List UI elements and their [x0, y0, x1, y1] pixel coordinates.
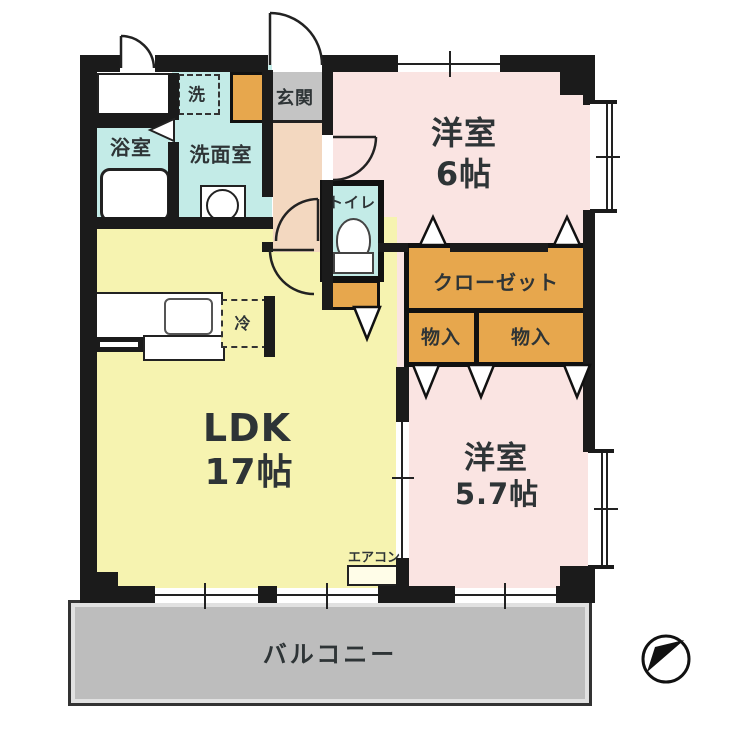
label-closet: クローゼット [433, 267, 559, 296]
wall [264, 296, 275, 357]
wall [560, 55, 595, 95]
label-balcony: バルコニー [263, 635, 398, 670]
kitchen-hatch-slit [100, 342, 138, 347]
wall [262, 242, 273, 252]
label-entrance: 玄関 [276, 84, 314, 110]
label-fridge: 冷 [234, 310, 251, 334]
wall [588, 565, 614, 569]
floor-plan: 浴室 洗 洗面室 玄関 トイレ 洋室 6帖 クローゼット 物入 物入 洋室 5.… [0, 0, 740, 740]
label-storage-right: 物入 [511, 323, 551, 350]
label-storage-left: 物入 [421, 323, 461, 350]
kitchen-sink-icon [164, 298, 213, 335]
utility-door-arc [121, 36, 154, 68]
wall [80, 55, 97, 603]
wall [95, 217, 273, 229]
label-western6-name: 洋室 [431, 108, 497, 154]
wall [322, 55, 398, 72]
bathtub-icon [100, 168, 170, 222]
wall [378, 586, 455, 603]
toilet-base-icon [333, 252, 374, 274]
label-bath: 浴室 [110, 132, 152, 161]
wall [590, 209, 617, 213]
wall [396, 367, 409, 422]
wall [378, 243, 408, 252]
hallway [273, 120, 322, 252]
entrance-door-arc [270, 13, 322, 65]
label-laundry: 洗 [188, 81, 206, 106]
wall [168, 142, 179, 225]
wall [168, 73, 179, 120]
label-ldk-size: 17帖 [204, 443, 293, 495]
label-toilet: トイレ [328, 192, 376, 213]
wall [322, 65, 333, 135]
label-aircon: エアコン [348, 547, 400, 566]
wall [450, 243, 548, 252]
label-washroom: 洗面室 [190, 139, 253, 168]
label-western6-size: 6帖 [436, 149, 492, 195]
wall [258, 586, 277, 603]
label-western57-size: 5.7帖 [455, 471, 539, 513]
compass-icon [643, 636, 689, 682]
wall [560, 566, 595, 603]
kitchen-counter-lower [143, 335, 225, 361]
wall [583, 210, 595, 452]
wall [80, 586, 155, 603]
wall [262, 70, 273, 197]
wall [155, 55, 268, 72]
wall [95, 113, 175, 128]
